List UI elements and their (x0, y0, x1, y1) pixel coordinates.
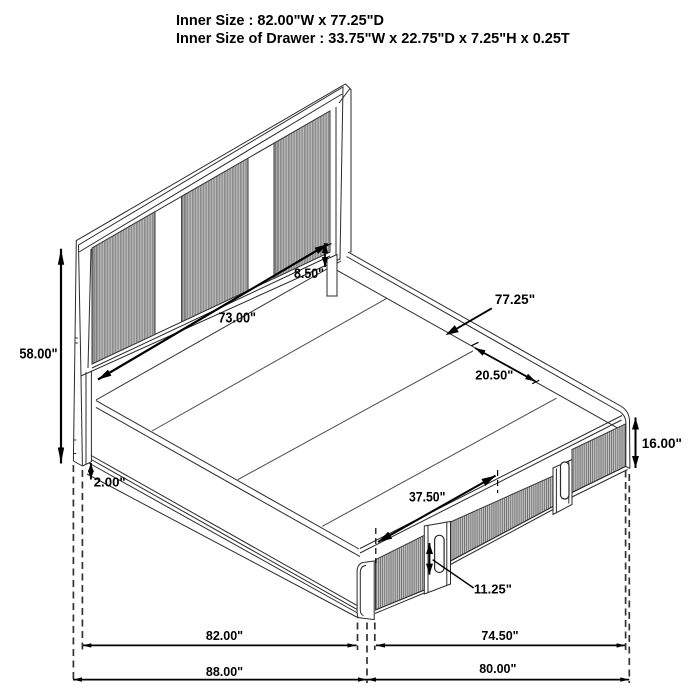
svg-text:Inner Size : 82.00"W x 77.25"D: Inner Size : 82.00"W x 77.25"D (176, 13, 384, 29)
svg-text:16.00": 16.00" (642, 436, 682, 451)
svg-text:37.50": 37.50" (409, 489, 446, 504)
svg-text:74.50": 74.50" (481, 629, 518, 643)
svg-text:Inner Size of Drawer : 33.75"W: Inner Size of Drawer : 33.75"W x 22.75"D… (176, 31, 570, 47)
svg-text:2.00": 2.00" (94, 474, 126, 489)
svg-text:88.00": 88.00" (206, 665, 243, 679)
svg-text:11.25": 11.25" (474, 581, 512, 596)
svg-text:58.00": 58.00" (19, 346, 57, 362)
svg-text:80.00": 80.00" (479, 662, 516, 676)
svg-text:82.00": 82.00" (206, 629, 243, 643)
svg-text:8.50": 8.50" (294, 265, 324, 281)
svg-text:77.25": 77.25" (495, 292, 535, 307)
svg-text:20.50": 20.50" (475, 368, 513, 383)
svg-text:73.00": 73.00" (218, 310, 256, 327)
